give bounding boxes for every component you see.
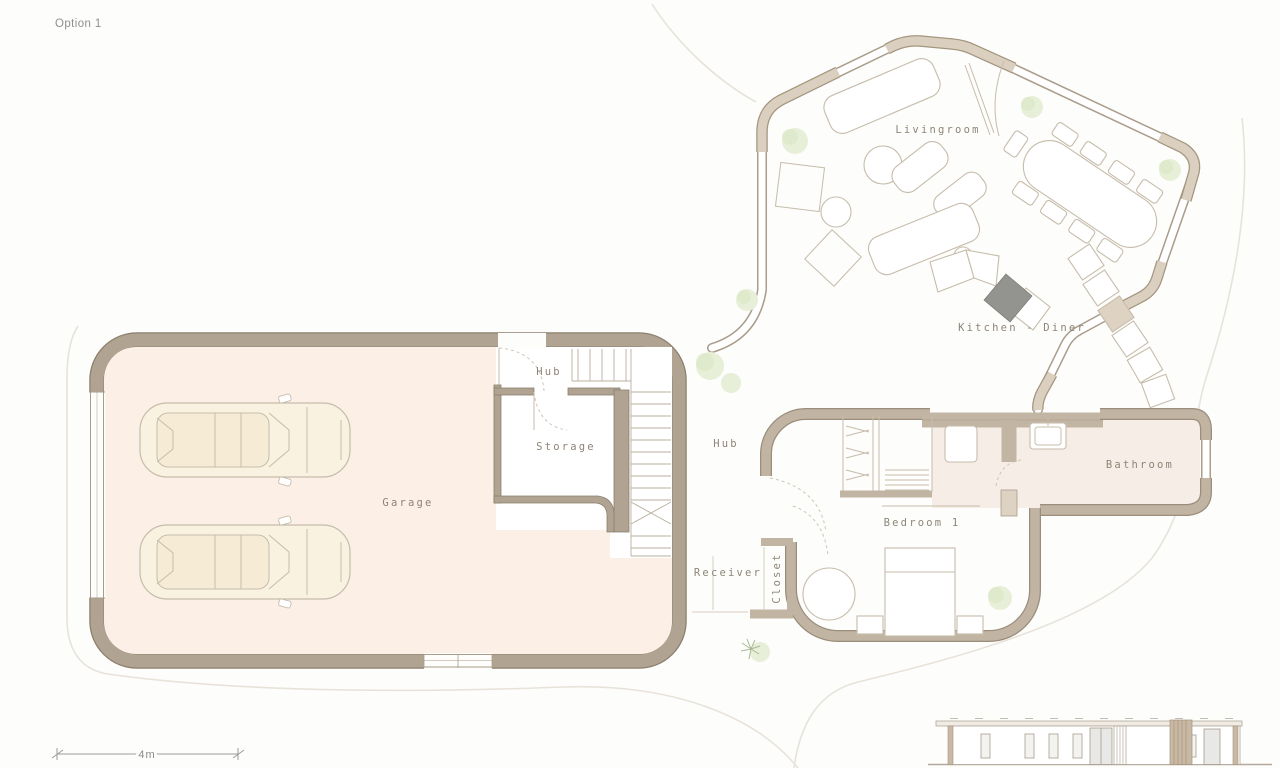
label-receiver: Receiver bbox=[694, 567, 762, 579]
toilet bbox=[945, 426, 977, 462]
garage-window-bottom bbox=[424, 653, 492, 669]
kitchen-counter bbox=[930, 250, 1050, 330]
bathroom-door-leaf bbox=[1001, 490, 1017, 516]
label-storage: Storage bbox=[536, 441, 596, 453]
label-bathroom: Bathroom bbox=[1106, 459, 1174, 471]
label-livingroom: Livingroom bbox=[895, 124, 980, 136]
round-chair bbox=[803, 568, 855, 620]
elevation-post bbox=[948, 726, 953, 765]
car-icon bbox=[140, 394, 350, 487]
floor-plan-sheet: Option 1 Livingroom Kitchen - Diner Hub … bbox=[0, 0, 1280, 768]
sheet-title: Option 1 bbox=[55, 18, 102, 30]
receiver-boundary bbox=[692, 556, 748, 612]
coffee-table bbox=[821, 197, 851, 227]
scale-bar: 4m bbox=[52, 748, 244, 761]
car-icon bbox=[140, 516, 350, 609]
rug bbox=[775, 162, 824, 211]
sink bbox=[1030, 418, 1066, 449]
front-elevation bbox=[928, 719, 1272, 765]
label-kitchen-diner: Kitchen - Diner bbox=[958, 322, 1086, 334]
label-bedroom-1: Bedroom 1 bbox=[884, 517, 961, 529]
bedroom-door bbox=[793, 506, 828, 556]
label-garage: Garage bbox=[382, 497, 433, 509]
garage-window-left bbox=[89, 392, 106, 598]
living-area bbox=[712, 41, 1195, 410]
rug bbox=[805, 230, 862, 287]
scale-label: 4m bbox=[138, 749, 155, 761]
label-closet: Closet bbox=[771, 552, 783, 603]
label-hub-corridor: Hub bbox=[713, 438, 739, 450]
wardrobe bbox=[840, 416, 932, 494]
label-hub-entry: Hub bbox=[536, 366, 562, 378]
bed bbox=[857, 548, 983, 636]
